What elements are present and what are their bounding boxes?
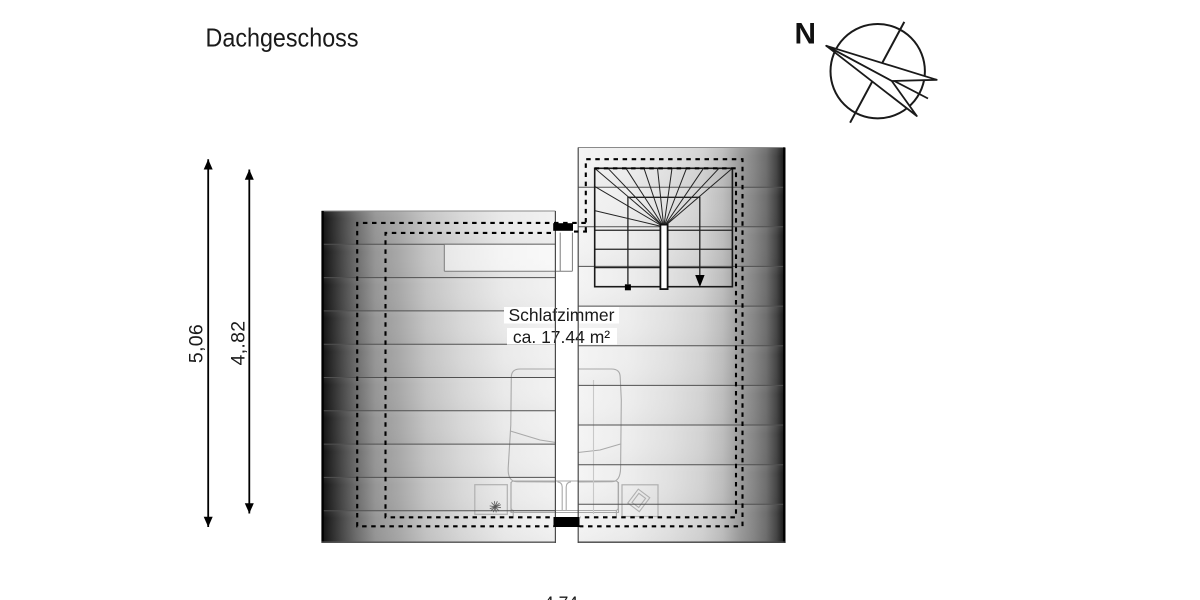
svg-text:N: N <box>795 17 817 50</box>
svg-text:5,06: 5,06 <box>185 324 207 363</box>
svg-text:4,.82: 4,.82 <box>227 321 249 366</box>
svg-text:ca. 17.44 m²: ca. 17.44 m² <box>513 327 610 347</box>
svg-text:4,74: 4,74 <box>544 593 578 600</box>
svg-text:Dachgeschoss: Dachgeschoss <box>206 22 359 52</box>
svg-text:Schlafzimmer: Schlafzimmer <box>509 305 615 325</box>
